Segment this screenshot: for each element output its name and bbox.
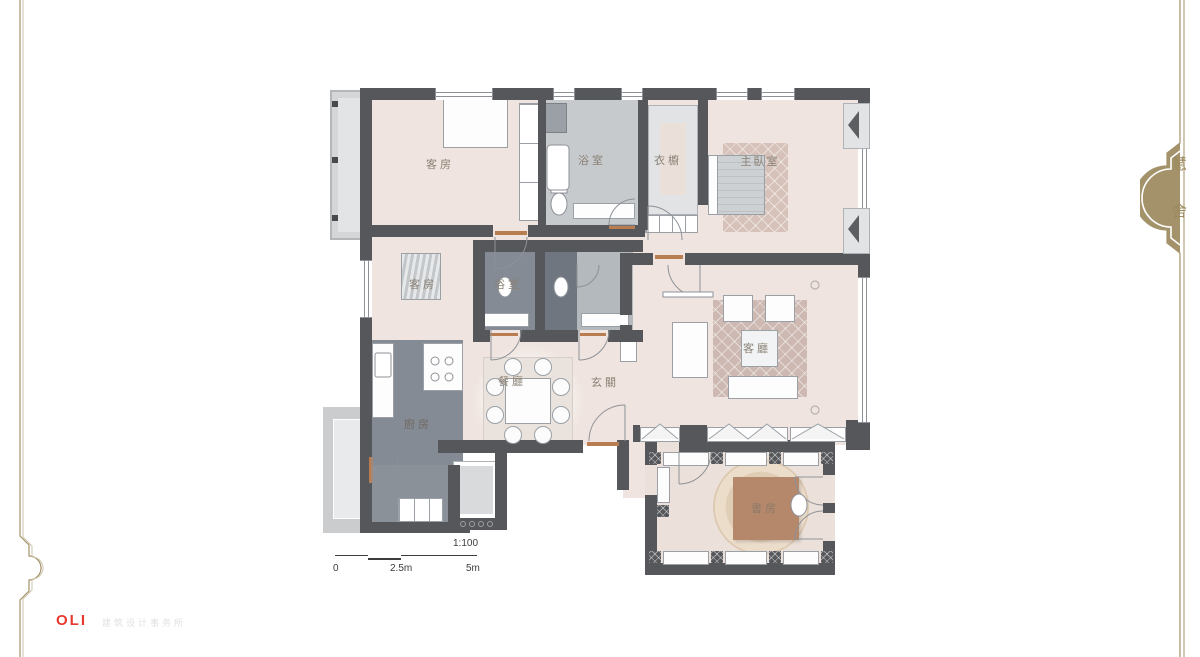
fixtures — [375, 145, 807, 516]
scale-bar: 1:100 0 2.5m 5m — [335, 538, 483, 576]
room-label-study: 書房 — [751, 500, 779, 516]
brand: OLI 建筑设计事务所 — [56, 612, 87, 630]
scale-line — [401, 555, 477, 556]
room-label-master-bedroom: 主臥室 — [741, 153, 780, 169]
stove-burners — [431, 357, 453, 381]
dining-chairs — [487, 359, 570, 444]
scale-tick-start: 0 — [333, 563, 339, 574]
left-border-ornament — [5, 0, 45, 657]
door-arcs — [372, 199, 823, 539]
brand-subtitle: 建筑设计事务所 — [102, 616, 186, 629]
curtain-marks — [848, 111, 859, 243]
room-label-foyer: 玄關 — [591, 374, 619, 390]
scale-line — [335, 555, 368, 556]
scale-line-step — [368, 558, 401, 560]
room-label-bathroom-1: 浴室 — [578, 152, 606, 168]
room-label-wardrobe: 衣櫥 — [654, 152, 682, 168]
balcony-columns — [332, 101, 338, 221]
room-label-living-room: 客廳 — [743, 340, 771, 356]
side-mark-bottom: 舍 — [1172, 200, 1187, 221]
room-label-guest-room-2: 客房 — [409, 276, 437, 292]
porch-dots — [461, 522, 493, 527]
scale-tick-mid: 2.5m — [390, 563, 412, 574]
room-label-dining-room: 餐廳 — [498, 373, 526, 389]
ceiling-lamps — [811, 281, 819, 414]
bay-window-marks — [642, 424, 844, 439]
page: 慧 舍 — [0, 0, 1200, 657]
floor-plan: 客房 浴室 衣櫥 主臥室 客房 浴室 客廳 餐廳 玄關 廚房 書房 — [323, 85, 873, 582]
room-label-kitchen: 廚房 — [404, 416, 432, 432]
side-mark-top: 慧 — [1172, 153, 1187, 174]
room-label-guest-room-1: 客房 — [426, 156, 454, 172]
scale-ratio: 1:100 — [453, 538, 478, 549]
room-label-bathroom-2: 浴室 — [494, 276, 522, 292]
right-border-ornament — [1140, 0, 1195, 657]
scale-tick-end: 5m — [466, 563, 480, 574]
brand-logo: OLI — [56, 612, 87, 629]
